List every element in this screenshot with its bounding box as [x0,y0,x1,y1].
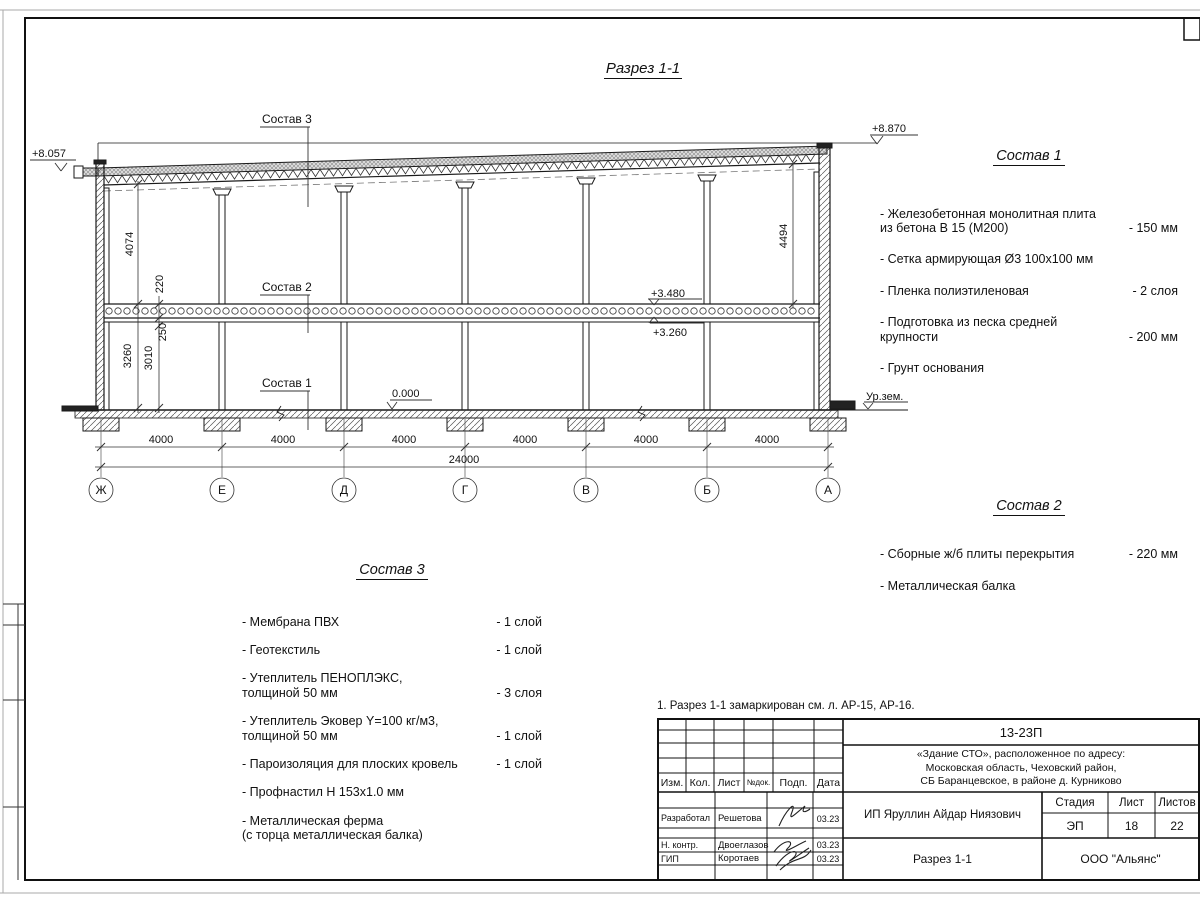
corner-stamp-box [1184,18,1200,40]
right-ground-ledge [830,401,855,409]
drawing-sheet: { "title": { "text": "Разрез 1-1" }, "no… [0,0,1200,900]
legend-item: - Подготовка из песка средней крупности-… [880,315,1178,344]
signature-gip [776,848,811,870]
elevation-left-top: +8.057 [30,148,76,171]
tb-role-gip: ГИП [661,852,714,865]
legend-item: - Пленка полиэтиленовая- 2 слоя [880,284,1178,298]
svg-text:+8.057: +8.057 [32,148,66,160]
left-base-ledge [62,406,98,411]
legend-item: - Утеплитель Эковер Y=100 кг/м3, толщино… [242,714,542,743]
tb-name-gip: Коротаев [718,852,766,865]
svg-text:+8.870: +8.870 [872,123,906,135]
left-stamp-cells [3,604,25,880]
legend-sostav-3: Состав 3 - Мембрана ПВХ- 1 слой - Геотек… [242,562,542,856]
axis-label: Д [340,483,348,497]
svg-text:+3.260: +3.260 [653,327,687,339]
right-parapet-cap [817,143,832,148]
column [814,172,819,304]
dim-bay: 4000 [755,434,779,446]
building-section [62,143,908,431]
legend-item: - Металлическая ферма (с торца металличе… [242,814,542,843]
dim-3010: 3010 [143,346,155,370]
signature-ncontrol [774,841,806,852]
tb-sheets-label: Листов [1155,792,1199,813]
legend-item: - Металлическая балка [880,579,1178,593]
legend-item: - Сетка армирующая Ø3 100х100 мм [880,252,1178,266]
legend-item: - Железобетонная монолитная плита из бет… [880,207,1178,236]
elevation-slab-top: +3.480 [648,288,702,305]
legend-item: - Профнастил Н 153х1.0 мм [242,785,542,799]
callout-sostav3: Состав 3 [262,112,312,126]
tb-col-ndok: №док. [744,773,773,792]
tb-role-developer: Разработал [661,808,714,828]
dim-3260: 3260 [122,344,134,368]
legend-item: - Пароизоляция для плоских кровель- 1 сл… [242,757,542,771]
tb-sheet-value: 18 [1108,813,1155,838]
dim-bay: 4000 [634,434,658,446]
dim-4494: 4494 [778,224,790,248]
svg-text:0.000: 0.000 [392,388,420,400]
signature-developer [779,806,810,826]
axis-label: Б [703,483,711,497]
svg-text:Ур.зем.: Ур.зем. [866,391,903,403]
tb-col-podp: Подп. [773,773,814,792]
tb-drawing-name: Разрез 1-1 [843,838,1042,880]
dim-220: 220 [154,275,166,293]
column [814,322,819,410]
legend-item: - Сборные ж/б плиты перекрытия- 220 мм [880,547,1178,561]
callout-sostav2: Состав 2 [262,280,312,294]
left-parapet-cap [94,160,106,164]
dim-bay: 4000 [271,434,295,446]
tb-col-izm: Изм. [658,773,686,792]
tb-date-ncontrol: 03.23 [813,838,843,852]
axis-label: Ж [95,483,106,497]
tb-sheets-value: 22 [1155,813,1199,838]
axis-bubbles: Ж Е Д Г В Б А [89,478,840,502]
legend-item: - Геотекстиль- 1 слой [242,643,542,657]
axis-label: Г [462,483,469,497]
column [104,322,109,410]
tb-client: ИП Яруллин Айдар Ниязович [843,792,1042,838]
legend-item: - Утеплитель ПЕНОПЛЭКС, толщиной 50 мм- … [242,671,542,700]
tb-name-ncontrol: Двоеглазов [718,838,766,852]
elevation-right-top: +8.870 [870,123,918,144]
legend-item: - Грунт основания [880,361,1178,375]
tb-date-developer: 03.23 [813,809,843,828]
drawing-title: Разрез 1-1 [578,60,708,77]
dimensions: 4074 3260 220 250 3010 4494 4000 4000 40… [89,160,840,502]
tb-name-developer: Решетова [718,808,766,828]
legend-sostav-2: Состав 2 - Сборные ж/б плиты перекрытия-… [880,498,1178,611]
ground-level-mark: Ур.зем. [863,391,908,409]
tb-col-kol: Кол. [686,773,714,792]
sheet-note: 1. Разрез 1-1 замаркирован см. л. АР-15,… [657,700,915,712]
composition-callouts: Состав 3 Состав 2 Состав 1 [260,112,312,430]
axis-label: А [824,483,832,497]
ground-floor [62,401,908,418]
tb-company: ООО "Альянс" [1042,838,1199,880]
tb-stage-value: ЭП [1042,813,1108,838]
tb-col-data: Дата [814,773,843,792]
legend-sostav-1: Состав 1 - Железобетонная монолитная пли… [880,148,1178,392]
left-wall [96,162,104,410]
tb-doc-number: 13-23П [843,719,1199,745]
svg-text:+3.480: +3.480 [651,288,685,300]
dim-bay: 4000 [149,434,173,446]
legend-heading: Состав 3 [242,562,542,579]
legend-heading: Состав 2 [880,498,1178,515]
axis-label: Е [218,483,226,497]
elevation-floor: 0.000 [387,388,432,409]
dim-250: 250 [157,323,169,341]
right-wall [819,146,830,410]
tb-sheet-label: Лист [1108,792,1155,813]
tb-col-list: Лист [714,773,744,792]
roof-insulation-band [98,146,827,176]
column [104,188,109,304]
tb-date-gip: 03.23 [813,852,843,865]
axis-label: В [582,483,590,497]
tb-project-name: «Здание СТО», расположенное по адресу: М… [843,745,1199,792]
dim-bay: 4000 [513,434,537,446]
legend-item: - Мембрана ПВХ- 1 слой [242,615,542,629]
legend-heading: Состав 1 [880,148,1178,165]
callout-sostav1: Состав 1 [262,376,312,390]
tb-stage-label: Стадия [1042,792,1108,813]
foundation-pads [83,418,846,431]
dim-bay: 4000 [392,434,416,446]
dim-4074: 4074 [124,232,136,256]
dim-total: 24000 [449,454,480,466]
tb-role-ncontrol: Н. контр. [661,838,714,852]
elevation-slab-bottom: +3.260 [649,317,704,339]
floor-slab [104,304,820,322]
